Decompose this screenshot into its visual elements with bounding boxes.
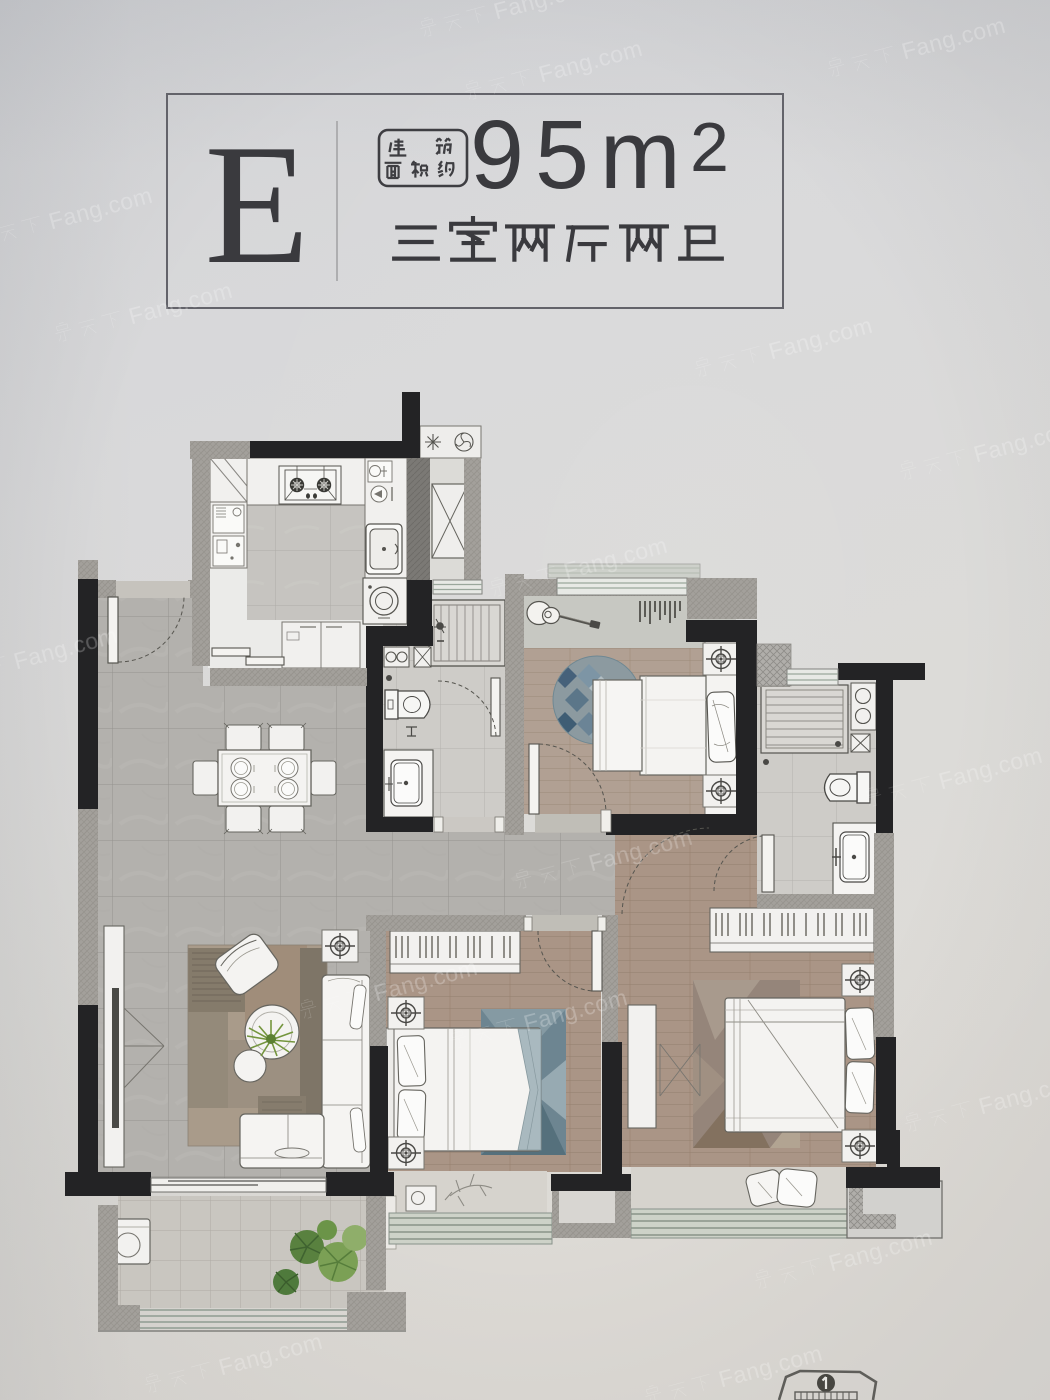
svg-text:E: E	[204, 110, 309, 300]
svg-text:95m: 95m	[470, 100, 692, 209]
svg-text:2: 2	[690, 108, 729, 186]
